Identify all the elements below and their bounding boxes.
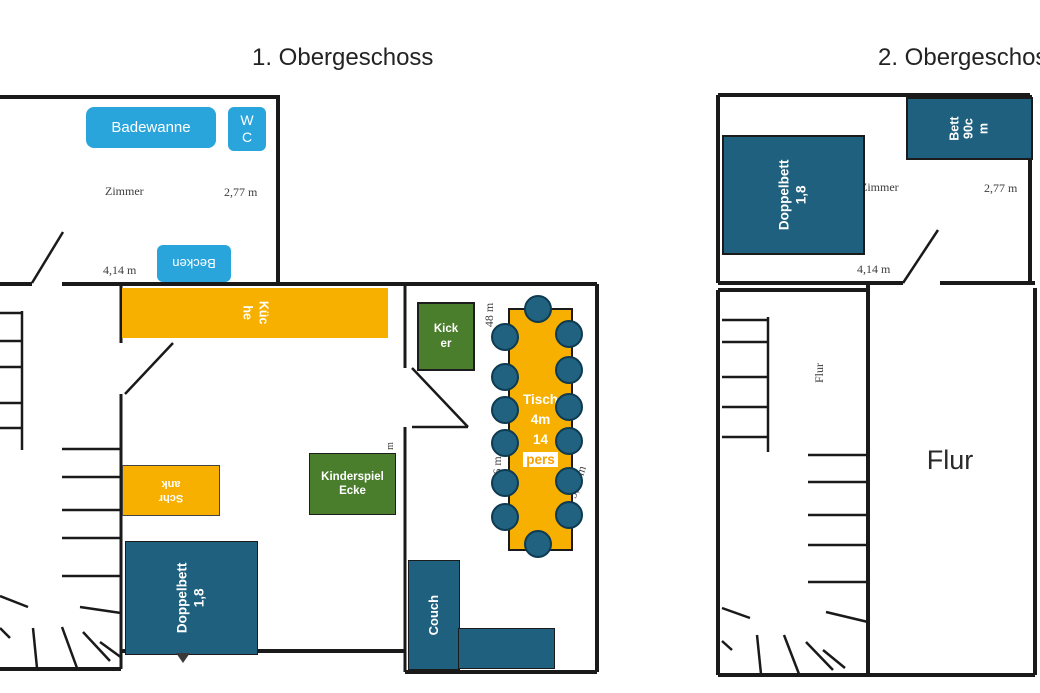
dining-table: Tisch 4m 14 pers <box>508 308 573 551</box>
kueche-counter: Küche <box>122 288 388 338</box>
door-swing <box>903 230 938 283</box>
dim-wall-m: m <box>384 439 396 453</box>
dim-414-f1: 4,14 m <box>103 263 136 278</box>
couch-vertical: Couch <box>408 560 460 670</box>
couch-horizontal <box>458 628 555 669</box>
kinderspiel-ecke: KinderspielEcke <box>309 453 396 515</box>
flur-room-label: Flur <box>905 444 995 476</box>
dim-left-table: 7,6 m <box>490 450 504 490</box>
room-label-zimmer-f1: Zimmer <box>105 184 144 199</box>
dim-top-table: 48 m <box>482 295 496 335</box>
stairs-floor2 <box>722 317 868 674</box>
dim-277-f2: 2,77 m <box>984 181 1017 196</box>
flur-small-label: Flur <box>812 358 826 388</box>
stairs-floor1 <box>0 311 122 668</box>
dim-414-f2: 4,14 m <box>857 262 890 277</box>
bett-90cm: Bett 90c m <box>906 97 1033 160</box>
floorplan-canvas: { "colors": { "chip_blue": "#2AA5DC", "f… <box>0 0 1040 693</box>
kicker-table: Kicker <box>417 302 475 371</box>
pin-marker-icon <box>176 653 190 663</box>
room-label-zimmer-f2: Zimmer <box>860 180 899 195</box>
doppelbett-f2: Doppelbett1,8 <box>722 135 865 255</box>
schrank-1: Schrank <box>122 465 220 516</box>
doppelbett-f1: Doppelbett1,8 <box>125 541 258 655</box>
dim-277-f1: 2,77 m <box>224 185 257 200</box>
